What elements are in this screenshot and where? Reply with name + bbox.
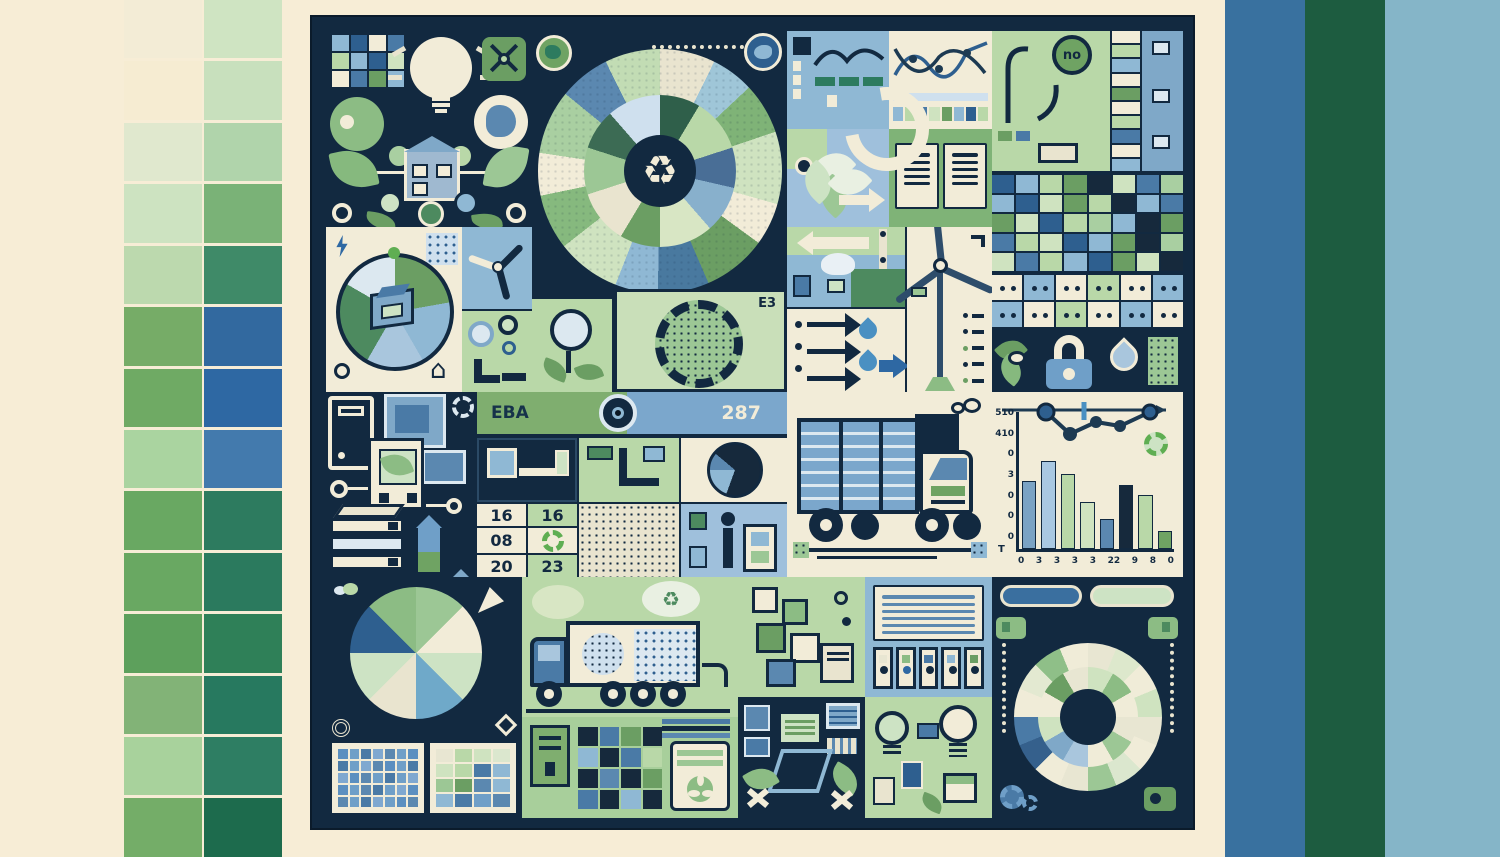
swatch-row (124, 737, 282, 795)
cube (766, 659, 796, 687)
x-axis-ticks: 0333322980 (1018, 556, 1174, 566)
status-dot (388, 247, 400, 259)
carton (820, 643, 854, 683)
cell (1089, 214, 1111, 232)
bar (1080, 502, 1094, 549)
swatch (204, 61, 282, 119)
figure-door-cell (681, 504, 787, 577)
chip (689, 512, 707, 530)
cell (1024, 302, 1054, 327)
cell (1064, 214, 1086, 232)
cell (643, 790, 663, 809)
cell (1112, 102, 1140, 114)
swatch (204, 0, 282, 58)
link-line (348, 487, 368, 490)
cell (578, 769, 598, 788)
no-bubble: no (1052, 35, 1092, 75)
tick-label: 0 (1018, 556, 1024, 566)
tile-idea-map (326, 31, 532, 227)
leaf-icon (328, 145, 379, 193)
dotted-list (963, 313, 987, 383)
swatch (204, 553, 282, 611)
cell (600, 790, 620, 809)
mini-chip (827, 95, 837, 107)
y-axis-ticks: 51041003000 (994, 408, 1014, 542)
link-ring (330, 480, 348, 498)
recycle-bin (964, 647, 984, 689)
cell (643, 748, 663, 767)
meter-chip (793, 275, 811, 297)
text-line (882, 624, 975, 627)
list-card (943, 143, 987, 209)
cell (397, 785, 407, 795)
list-dot (795, 343, 802, 350)
turbine-hub (933, 258, 948, 273)
collage-panel: ♻ E3 (310, 15, 1195, 830)
cell (455, 764, 472, 777)
crystal-icon (495, 714, 518, 737)
cell (351, 71, 368, 87)
calendar-cell: 16 (477, 504, 526, 526)
cell (1056, 302, 1086, 327)
cell (361, 785, 371, 795)
cell (1137, 175, 1159, 193)
text-line (904, 182, 930, 185)
swatch-row (124, 307, 282, 365)
tick-label: 0 (994, 491, 1014, 501)
cell (1112, 31, 1140, 43)
tile-codes: EBA 287 16 16 08 20 23 (477, 392, 787, 577)
bar (1100, 519, 1114, 550)
domino-row (992, 275, 1183, 327)
tick-label: 8 (1150, 556, 1156, 566)
bulb-base (883, 745, 901, 757)
cell (332, 53, 349, 69)
truck-wheel (851, 512, 879, 540)
swatch (124, 369, 202, 427)
checklist-panel (787, 309, 905, 392)
dot-mark (842, 617, 851, 626)
text-line (952, 182, 978, 185)
cell (954, 107, 964, 121)
cell (350, 797, 360, 807)
cube (943, 773, 977, 803)
truck-cab (919, 450, 973, 514)
cell (474, 749, 491, 762)
truck-wheel (660, 681, 686, 707)
tile-truck-right (787, 392, 992, 577)
swatch-row (124, 614, 282, 672)
cell (351, 35, 368, 51)
cell (408, 773, 418, 783)
tile-pie-grids (326, 577, 522, 818)
cell (1040, 214, 1062, 232)
recycle-bin (941, 647, 961, 689)
tag-chip (917, 723, 939, 739)
cell (992, 175, 1014, 193)
water-drop-icon (1104, 337, 1144, 377)
bar-series (1022, 436, 1172, 549)
cell (621, 790, 641, 809)
band-right: 287 (627, 392, 787, 434)
swatch (204, 614, 282, 672)
cell (338, 785, 348, 795)
tag-chip (911, 287, 927, 297)
swatch (124, 307, 202, 365)
meter-chip (827, 279, 845, 293)
comet-globe-icon (330, 97, 384, 151)
cell (1040, 175, 1062, 193)
cell (408, 749, 418, 759)
tile-rotor (462, 227, 532, 392)
sunburst-core: ♻ (624, 135, 696, 207)
cell (1113, 195, 1135, 213)
cell (600, 727, 620, 746)
bar (1041, 461, 1055, 549)
gear-pair-icon (1000, 785, 1024, 809)
cell (361, 749, 371, 759)
cell (1113, 175, 1135, 193)
cell (1064, 175, 1086, 193)
swatch (124, 184, 202, 242)
cell (1040, 234, 1062, 252)
cell (493, 749, 510, 762)
leaf-icon (919, 792, 945, 815)
calendar-number: 16 (541, 506, 563, 525)
node-circle (418, 201, 444, 227)
tag-chip (1152, 89, 1170, 103)
swatch (204, 184, 282, 242)
cell (474, 764, 491, 777)
tile-bar-chart: 51041003000 T 0333322980 (992, 392, 1183, 577)
right-band-darkgreen (1305, 0, 1385, 857)
cell (1161, 175, 1183, 193)
swatch (204, 491, 282, 549)
bin-row (873, 647, 984, 689)
pipe-elbow (474, 359, 500, 383)
axis-origin-label: T (998, 544, 1005, 555)
cell (373, 797, 383, 807)
right-band-lightblue (1385, 0, 1500, 857)
cell (338, 749, 348, 759)
cell (992, 214, 1014, 232)
tick-label: 0 (1168, 556, 1174, 566)
cell (578, 748, 598, 767)
cell (1112, 74, 1140, 86)
leaf-icon (471, 211, 503, 227)
cell (1064, 253, 1086, 271)
gear-tag-label: E3 (758, 296, 776, 311)
server-stack-icon (330, 514, 408, 572)
qr-chip (793, 542, 809, 558)
truck-wheel (630, 681, 656, 707)
tag-chip (1152, 135, 1170, 149)
mini-pie-cell (681, 438, 787, 502)
swatch-row (124, 553, 282, 611)
text-line (904, 175, 930, 178)
tick-label: 510 (994, 408, 1014, 418)
truck-wheel (915, 508, 949, 542)
eba-label: EBA (491, 403, 529, 423)
text-line (952, 175, 978, 178)
crate (778, 711, 822, 745)
swatch-row (124, 123, 282, 181)
cell (621, 769, 641, 788)
leafy-mosaic (1148, 337, 1178, 385)
cell (1064, 195, 1086, 213)
cube (752, 587, 778, 613)
cell (338, 773, 348, 783)
cell (1113, 253, 1135, 271)
recycle-bin (873, 647, 893, 689)
swatch (124, 614, 202, 672)
tick-label: 3 (1054, 556, 1060, 566)
stacked-bar-column (1112, 31, 1140, 171)
cell (600, 769, 620, 788)
pipe-run (502, 373, 526, 381)
tick-label: 3 (1036, 556, 1042, 566)
bulb-base-line (432, 97, 450, 101)
pill-blue (1000, 585, 1082, 607)
cell (1121, 275, 1151, 300)
tag-square (744, 705, 770, 731)
cell (474, 794, 491, 807)
swatch-row (124, 246, 282, 304)
cell (1112, 88, 1140, 100)
cell (1016, 253, 1038, 271)
ribbon-stripe (662, 726, 730, 731)
link-line (426, 504, 448, 507)
cell (992, 302, 1022, 327)
turbine-panel (907, 227, 992, 392)
bar (1119, 485, 1133, 549)
trailer-box (566, 621, 700, 687)
cell (493, 779, 510, 792)
cell (373, 749, 383, 759)
swatch (124, 246, 202, 304)
node-circle (454, 191, 478, 215)
sunburst-chart: ♻ (538, 49, 782, 293)
fan-icon (687, 776, 713, 802)
list-arrow (807, 322, 845, 327)
house-glyph: ⌂ (430, 355, 447, 385)
cell (385, 797, 395, 807)
mixed-grid (430, 743, 516, 813)
cabinet-icon (530, 725, 570, 787)
cell (1153, 302, 1183, 327)
pie-chart-8 (350, 587, 482, 719)
magnifier-icon (550, 309, 592, 351)
tick-label: 22 (1108, 556, 1121, 566)
lightbulb-icon (410, 37, 472, 99)
cell (338, 761, 348, 771)
swatch (124, 553, 202, 611)
mini-bar (815, 77, 835, 86)
x-axis (1016, 549, 1174, 552)
cell (1016, 175, 1038, 193)
calendar-number: 23 (541, 557, 563, 576)
node-circle (378, 191, 402, 215)
house-icon (404, 149, 460, 201)
ring-mark (834, 591, 848, 605)
cell (338, 797, 348, 807)
cell (1016, 234, 1038, 252)
dot-texture-cell (579, 504, 679, 577)
tag-chip (1152, 41, 1170, 55)
swatch (204, 123, 282, 181)
swatch-row (124, 369, 282, 427)
leaf-icon (482, 142, 529, 192)
bulb-outline-icon (875, 711, 909, 745)
pallet-frame (767, 749, 833, 793)
mini-pie-chart (707, 442, 763, 498)
recycle-cloud: ♻ (642, 581, 700, 617)
cell (1024, 275, 1054, 300)
cell (397, 749, 407, 759)
gear-ring-cell (528, 528, 577, 553)
ribbon-stripe (662, 719, 730, 724)
cell (1089, 195, 1111, 213)
sub-tile-gear: E3 (614, 289, 787, 392)
swatch-row (124, 491, 282, 549)
cell (578, 727, 598, 746)
bar (1138, 495, 1152, 549)
tick-label: 9 (1132, 556, 1138, 566)
cell (1112, 116, 1140, 128)
recycle-bin (896, 647, 916, 689)
list-arrow (807, 349, 845, 354)
cell (385, 749, 395, 759)
bar (1022, 481, 1036, 549)
swatch (124, 430, 202, 488)
truck-wheel (600, 681, 626, 707)
up-arrow-icon (418, 528, 440, 572)
mini-chip (1016, 131, 1030, 141)
quad-boxes (738, 577, 865, 697)
cursor-arrow-icon (478, 587, 504, 613)
swatch (124, 798, 202, 856)
cell (942, 107, 952, 121)
solar-grid (332, 743, 424, 813)
swatch (124, 491, 202, 549)
cell (1113, 214, 1135, 232)
cell (350, 761, 360, 771)
cell (493, 764, 510, 777)
big-arrow-right (879, 360, 893, 372)
bar (1158, 531, 1172, 549)
text-line (882, 595, 975, 599)
swatch (204, 369, 282, 427)
cell (1161, 195, 1183, 213)
magnifier-handle (566, 351, 571, 373)
mini-chip (998, 131, 1012, 141)
notice-card (873, 585, 984, 641)
mini-chip (793, 89, 801, 99)
swatch (204, 246, 282, 304)
lock-shackle (1054, 335, 1084, 361)
truck-wheel (809, 508, 843, 542)
right-band-blue (1225, 0, 1305, 857)
ground-line (526, 709, 730, 713)
turbine-pole (937, 267, 943, 383)
tile-sunburst: ♻ E3 (532, 31, 787, 392)
cell (493, 794, 510, 807)
cell (474, 779, 491, 792)
swatch-row (124, 798, 282, 856)
cell (1040, 253, 1062, 271)
garage-panel (670, 741, 730, 811)
cell (436, 749, 453, 762)
recycle-icon: ♻ (642, 148, 678, 194)
cell (1137, 234, 1159, 252)
cell (1056, 275, 1086, 300)
cell (621, 748, 641, 767)
text-line (882, 610, 975, 613)
cell (385, 773, 395, 783)
cell (455, 794, 472, 807)
machine-icon (996, 617, 1026, 639)
tile-donut (992, 577, 1183, 818)
chip (689, 546, 707, 568)
cell (332, 71, 349, 87)
machine-icon (1148, 617, 1178, 639)
cell (1112, 159, 1140, 171)
donut-hole (1060, 689, 1116, 745)
signpost (879, 229, 887, 269)
arrow-right-icon (839, 195, 869, 205)
swatch (204, 737, 282, 795)
bubble (498, 315, 518, 335)
rotor-panel (462, 227, 532, 309)
tick-label: 0 (994, 532, 1014, 542)
tick-label: 0 (994, 449, 1014, 459)
cell (1112, 59, 1140, 71)
truck-wheel (536, 681, 562, 707)
dot-grid-chip (426, 233, 458, 265)
cell (1112, 45, 1140, 57)
mini-bar (863, 77, 883, 86)
landscape-panel (787, 227, 905, 307)
cell (1040, 195, 1062, 213)
cell (373, 785, 383, 795)
poster-canvas: { "meta": {"description": "Green and blu… (0, 0, 1500, 857)
cell (621, 727, 641, 746)
pipe-cell-navy (477, 438, 577, 502)
calendar-number: 16 (490, 506, 512, 525)
text-line (952, 161, 978, 164)
tile-logistics (738, 577, 992, 818)
swatch (124, 676, 202, 734)
machine-icon (1144, 787, 1176, 811)
cloud-icon (821, 253, 855, 275)
cell (1112, 130, 1140, 142)
dotted-rail (1002, 643, 1006, 733)
cloud-shape (532, 585, 584, 619)
cell (600, 748, 620, 767)
tick-label: 410 (994, 429, 1014, 439)
tick-label: 3 (1090, 556, 1096, 566)
cell (992, 253, 1014, 271)
calendar-cell: 16 (528, 504, 577, 526)
workshop-waffle (578, 727, 662, 809)
cell (643, 727, 663, 746)
sub-tile-inspector (532, 299, 612, 392)
cell (1161, 214, 1183, 232)
tile-energy (787, 227, 992, 392)
exhaust-pipe (702, 663, 728, 687)
lock-icon (1046, 359, 1092, 389)
quad-pallet (738, 697, 865, 818)
